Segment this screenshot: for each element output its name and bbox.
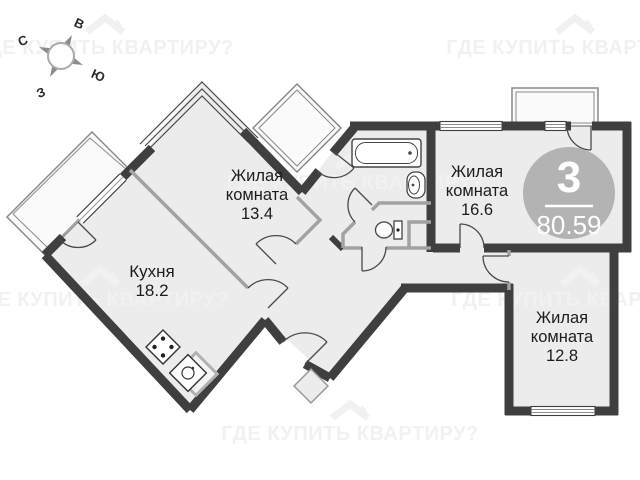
room-area-value: 12.8 — [546, 347, 578, 365]
compass-label-west: З — [34, 84, 47, 101]
watermark-text: ГДЕ КУПИТЬ КВАРТИРУ? — [221, 423, 479, 445]
bath-sink — [407, 172, 425, 198]
room-name-line: Жилая — [536, 309, 588, 327]
room-area-value: 16.6 — [461, 201, 493, 219]
floor-plan-svg: ГДЕ КУПИТЬ КВАРТИРУ? ГДЕ КУПИТЬ КВАРТИРУ… — [0, 0, 640, 480]
room-label-kitchen: Кухня 18.2 — [129, 262, 175, 300]
watermark-text: ГДЕ КУПИТЬ КВАРТИРУ? — [446, 37, 640, 59]
watermark: ГДЕ КУПИТЬ КВАРТИРУ? — [0, 18, 234, 59]
window-room166-large — [440, 122, 502, 131]
compass-label-south: Ю — [89, 66, 107, 85]
window-room166-small — [545, 122, 566, 131]
room-area-value: 18.2 — [135, 281, 168, 300]
room-name-line: комната — [226, 186, 289, 204]
watermark-text: ГДЕ КУПИТЬ КВАРТИРУ? — [0, 289, 229, 311]
floor-plan-page: ГДЕ КУПИТЬ КВАРТИРУ? ГДЕ КУПИТЬ КВАРТИРУ… — [0, 0, 640, 480]
badge-total-area: 3 80.59 — [523, 147, 615, 240]
room-name-line: Кухня — [129, 262, 175, 281]
watermark-text: ГДЕ КУПИТЬ КВАРТИРУ? — [0, 37, 234, 59]
balcony-top-right — [512, 88, 598, 126]
room-name-line: комната — [446, 182, 509, 200]
room-name-line: комната — [531, 328, 594, 346]
house-roof-icon — [557, 18, 593, 32]
house-roof-icon — [332, 404, 368, 418]
room-name-line: Жилая — [231, 167, 283, 185]
compass-circle — [48, 43, 74, 69]
badge-rooms-count: 3 — [557, 153, 581, 202]
watermark: ГДЕ КУПИТЬ КВАРТИРУ? — [221, 404, 479, 445]
watermark: ГДЕ КУПИТЬ КВАРТИРУ? — [446, 18, 640, 59]
toilet — [376, 221, 403, 239]
room-area-value: 13.4 — [241, 205, 273, 223]
compass-label-east: В — [72, 15, 87, 33]
window-room128 — [531, 407, 595, 416]
bathtub — [352, 139, 421, 167]
house-roof-icon — [87, 18, 123, 32]
badge-area-value: 80.59 — [536, 210, 601, 240]
room-name-line: Жилая — [451, 163, 503, 181]
